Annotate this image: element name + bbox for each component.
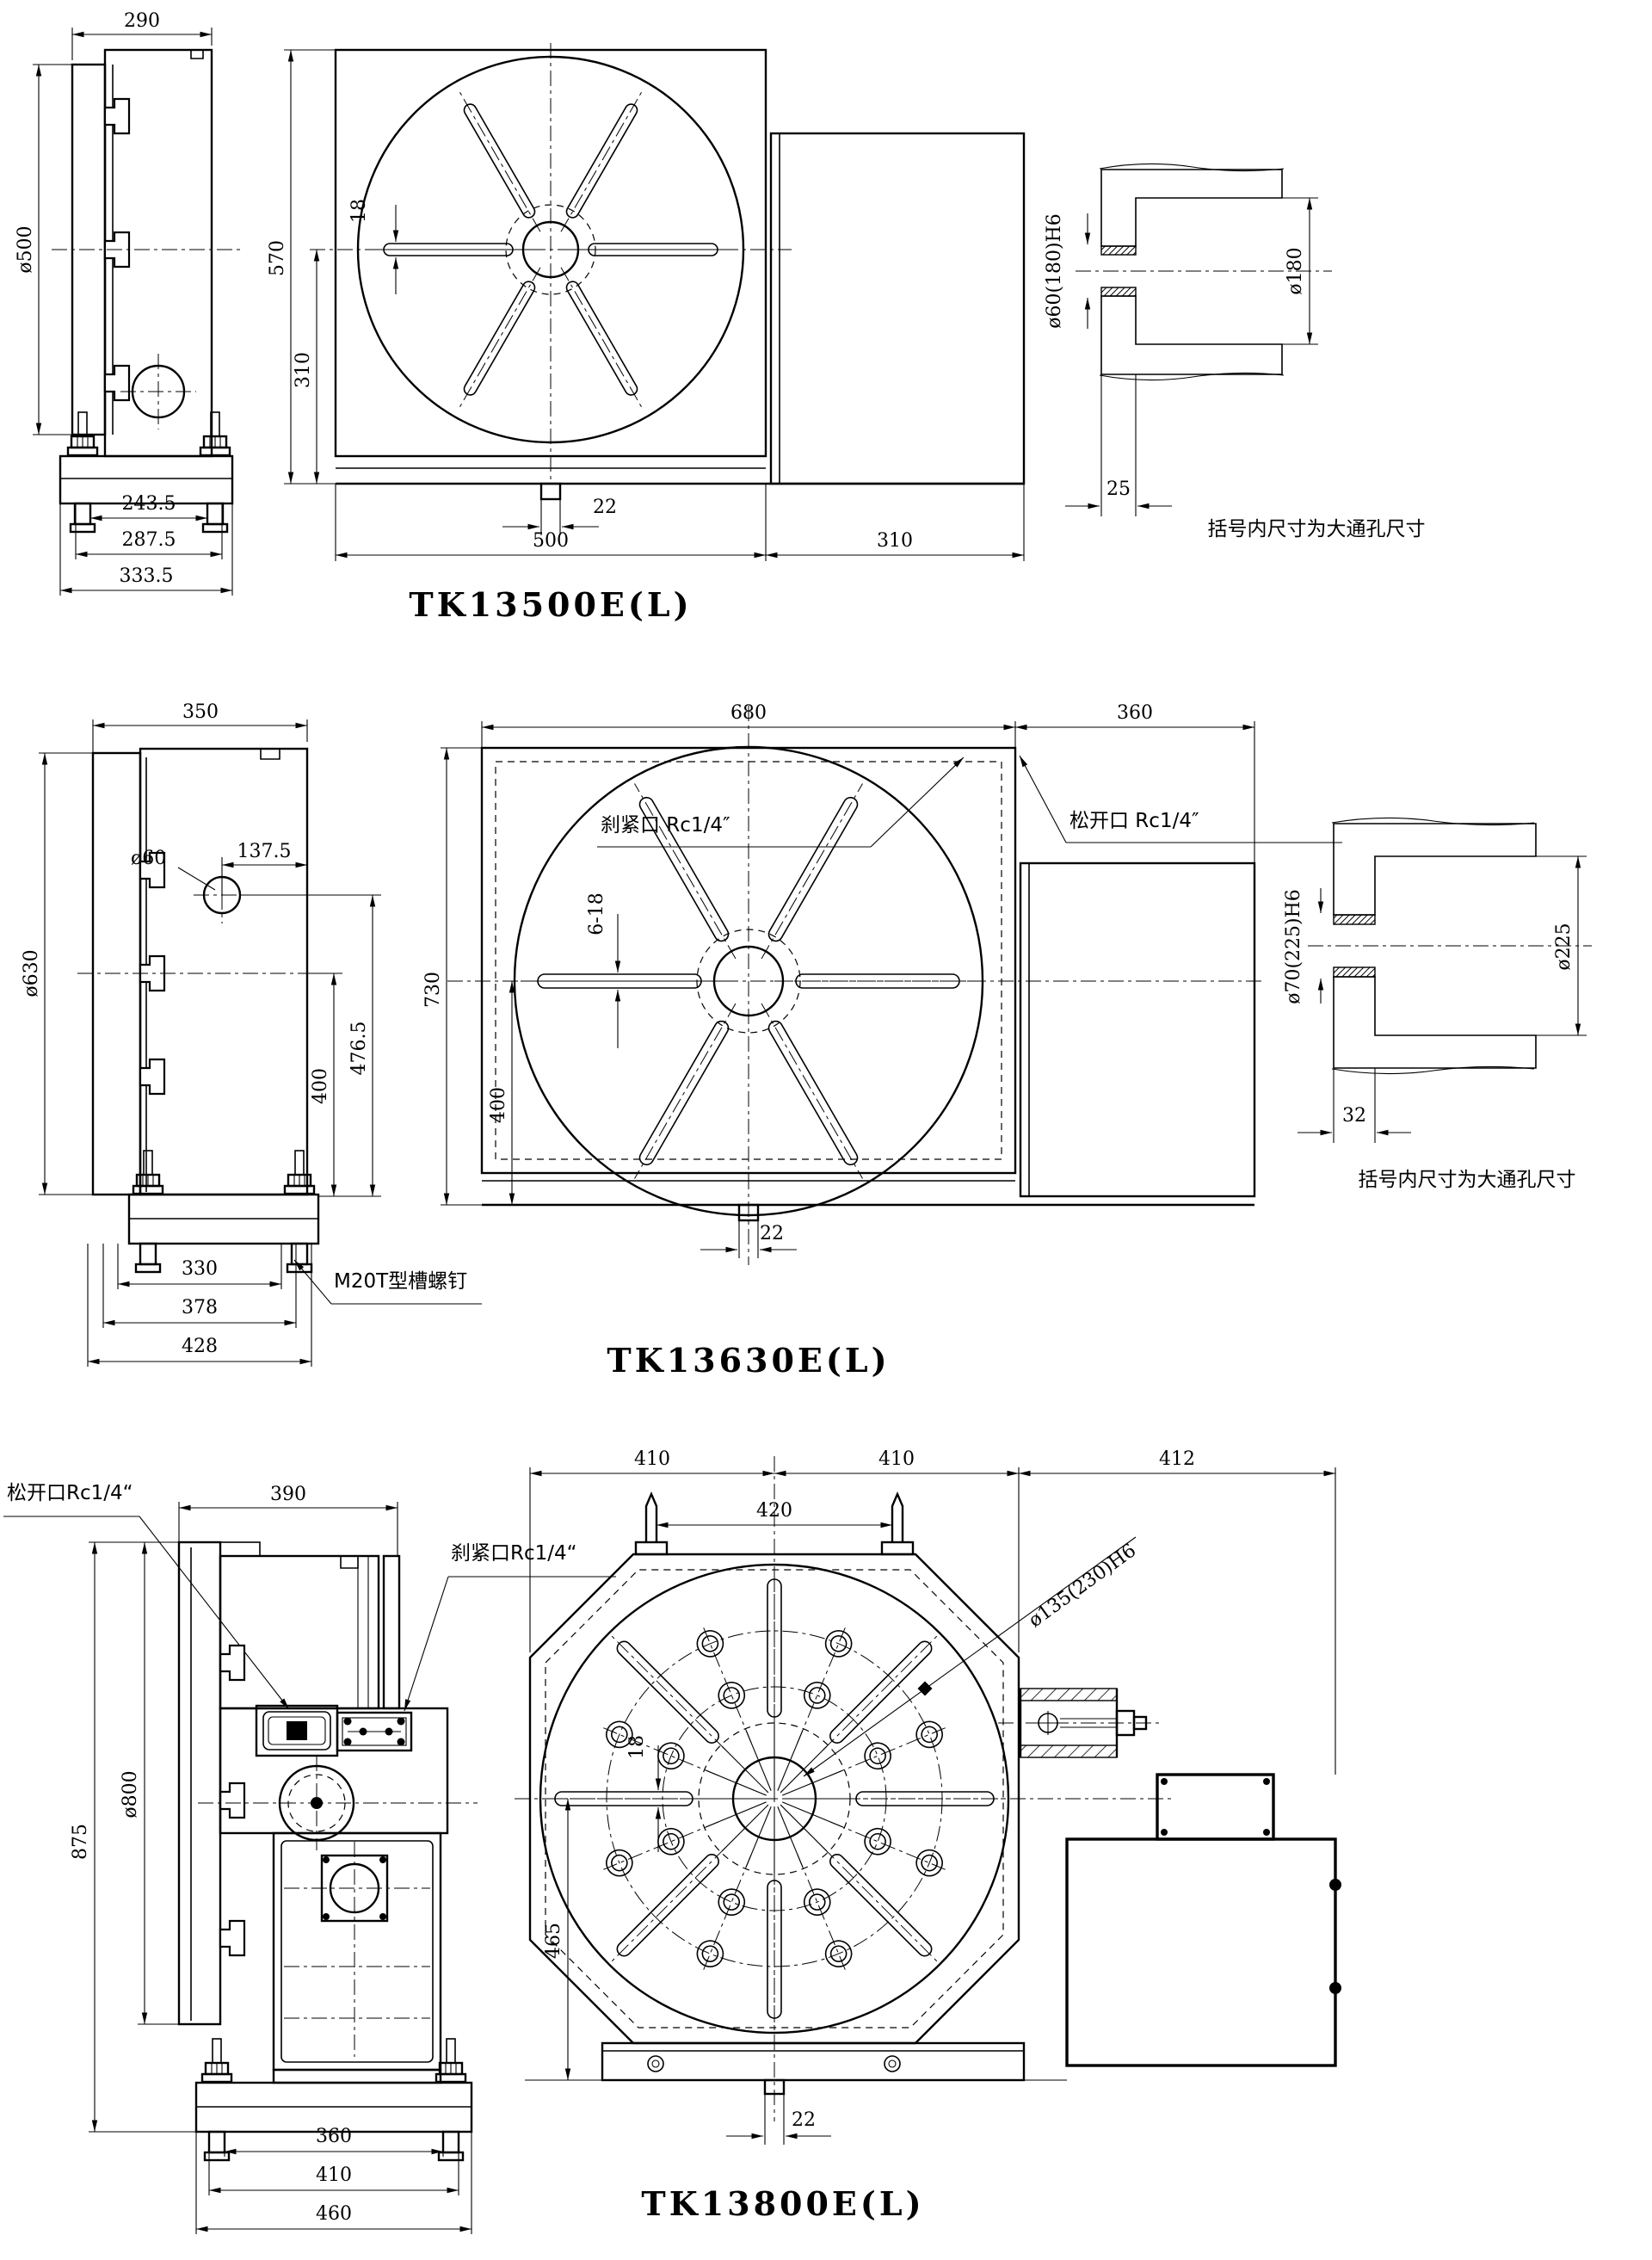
note-parentheses-2: 括号内尺寸为大通孔尺寸 bbox=[1359, 1169, 1576, 1191]
dim-dia800: ø800 bbox=[120, 1770, 141, 1818]
note-parentheses-1: 括号内尺寸为大通孔尺寸 bbox=[1208, 518, 1426, 540]
dim-310-left: 310 bbox=[293, 352, 314, 388]
dim-400-front: 400 bbox=[488, 1087, 509, 1123]
dim-bore60: ø60(180)H6 bbox=[1044, 213, 1065, 329]
dim-465: 465 bbox=[543, 1923, 564, 1959]
tk13630-bore-detail: ø225 ø70(225)H6 32 括号内尺寸为大通孔尺寸 bbox=[1283, 818, 1592, 1191]
drawing-sheet: 290 ø500 243.5 287.5 333.5 bbox=[0, 0, 1652, 2260]
dim-18: 18 bbox=[348, 199, 370, 223]
dim-6-18: 6-18 bbox=[586, 892, 607, 935]
view-tk13500: 290 ø500 243.5 287.5 333.5 bbox=[15, 10, 1426, 624]
dim-333_5: 333.5 bbox=[120, 565, 174, 587]
tk13630-front-view: 6-18 680 360 730 400 22 刹紧口 Rc1/4″ 松开口 R… bbox=[422, 702, 1342, 1380]
dim-dia500: ø500 bbox=[15, 225, 36, 273]
tk13500-bore-detail: ø180 ø60(180)H6 25 括号内尺寸为大通孔尺寸 bbox=[1044, 164, 1426, 540]
dim-dia135: ø135(230)H6 bbox=[1025, 1540, 1140, 1632]
dim-dia630: ø630 bbox=[21, 949, 42, 997]
tk13500-side-view: 290 ø500 243.5 287.5 333.5 bbox=[15, 10, 241, 596]
dim-22: 22 bbox=[792, 2109, 816, 2131]
label-clamp-port: 刹紧口Rc1/4“ bbox=[451, 1542, 577, 1565]
dim-378: 378 bbox=[182, 1297, 218, 1318]
dim-420: 420 bbox=[756, 1500, 792, 1522]
tk13500-front-view: 18 570 310 22 500 310 TK13500E(L) bbox=[267, 43, 1024, 624]
dim-410-base: 410 bbox=[316, 2164, 352, 2186]
dim-22: 22 bbox=[760, 1223, 784, 1244]
dim-dia180: ø180 bbox=[1285, 247, 1306, 294]
dim-428: 428 bbox=[182, 1336, 218, 1357]
dim-dia225: ø225 bbox=[1553, 923, 1575, 970]
dim-390: 390 bbox=[270, 1484, 306, 1505]
dim-360: 360 bbox=[1117, 702, 1153, 724]
dim-137_5: 137.5 bbox=[237, 841, 292, 862]
dim-310-bottom: 310 bbox=[877, 530, 913, 552]
dim-460: 460 bbox=[316, 2203, 352, 2225]
view-tk13800: 松开口Rc1/4“ 刹紧口Rc1/4“ bbox=[3, 1448, 1341, 2234]
tk13800-side-view: 松开口Rc1/4“ 刹紧口Rc1/4“ bbox=[3, 1482, 616, 2234]
dim-243_5: 243.5 bbox=[122, 493, 176, 515]
dim-360: 360 bbox=[316, 2126, 352, 2147]
dim-bore70: ø70(225)H6 bbox=[1283, 889, 1304, 1004]
title-tk13630: TK13630E(L) bbox=[607, 1341, 890, 1380]
dim-730: 730 bbox=[422, 972, 444, 1008]
dim-500: 500 bbox=[533, 530, 569, 552]
label-release-port: 松开口 Rc1/4″ bbox=[1069, 810, 1199, 832]
dim-dia60-hole: ø60 bbox=[131, 848, 166, 869]
rotary-table-drawing: 290 ø500 243.5 287.5 333.5 bbox=[0, 0, 1652, 2260]
view-tk13630: ø60 137.5 350 ø630 400 476.5 330 378 428… bbox=[21, 701, 1592, 1380]
dim-680: 680 bbox=[730, 702, 767, 724]
dim-290: 290 bbox=[124, 10, 160, 32]
dim-330: 330 bbox=[182, 1258, 218, 1280]
label-release-port: 松开口Rc1/4“ bbox=[7, 1482, 133, 1504]
dim-400-side: 400 bbox=[310, 1068, 331, 1104]
dim-412: 412 bbox=[1159, 1448, 1195, 1470]
dim-32: 32 bbox=[1342, 1105, 1366, 1127]
label-tslot-screw: M20T型槽螺钉 bbox=[334, 1270, 467, 1293]
dim-570: 570 bbox=[267, 240, 288, 276]
dim-25: 25 bbox=[1106, 479, 1131, 500]
tk13630-side-view: ø60 137.5 350 ø630 400 476.5 330 378 428… bbox=[21, 701, 482, 1367]
clamp-block bbox=[998, 1689, 1160, 1757]
dim-18: 18 bbox=[626, 1735, 648, 1759]
label-clamp-port: 刹紧口 Rc1/4″ bbox=[601, 814, 730, 837]
dim-350: 350 bbox=[182, 701, 219, 723]
dim-22: 22 bbox=[593, 497, 617, 518]
dim-476_5: 476.5 bbox=[348, 1022, 370, 1076]
dim-410-right: 410 bbox=[878, 1448, 915, 1470]
motor-box bbox=[1067, 1775, 1341, 2065]
dim-287_5: 287.5 bbox=[122, 529, 176, 551]
dim-875: 875 bbox=[70, 1824, 91, 1860]
dim-410-left: 410 bbox=[634, 1448, 670, 1470]
title-tk13800: TK13800E(L) bbox=[641, 2184, 924, 2223]
title-tk13500: TK13500E(L) bbox=[409, 585, 692, 624]
tk13800-front-view: 420 410 410 412 ø135(230)H6 18 465 22 bbox=[515, 1448, 1341, 2223]
